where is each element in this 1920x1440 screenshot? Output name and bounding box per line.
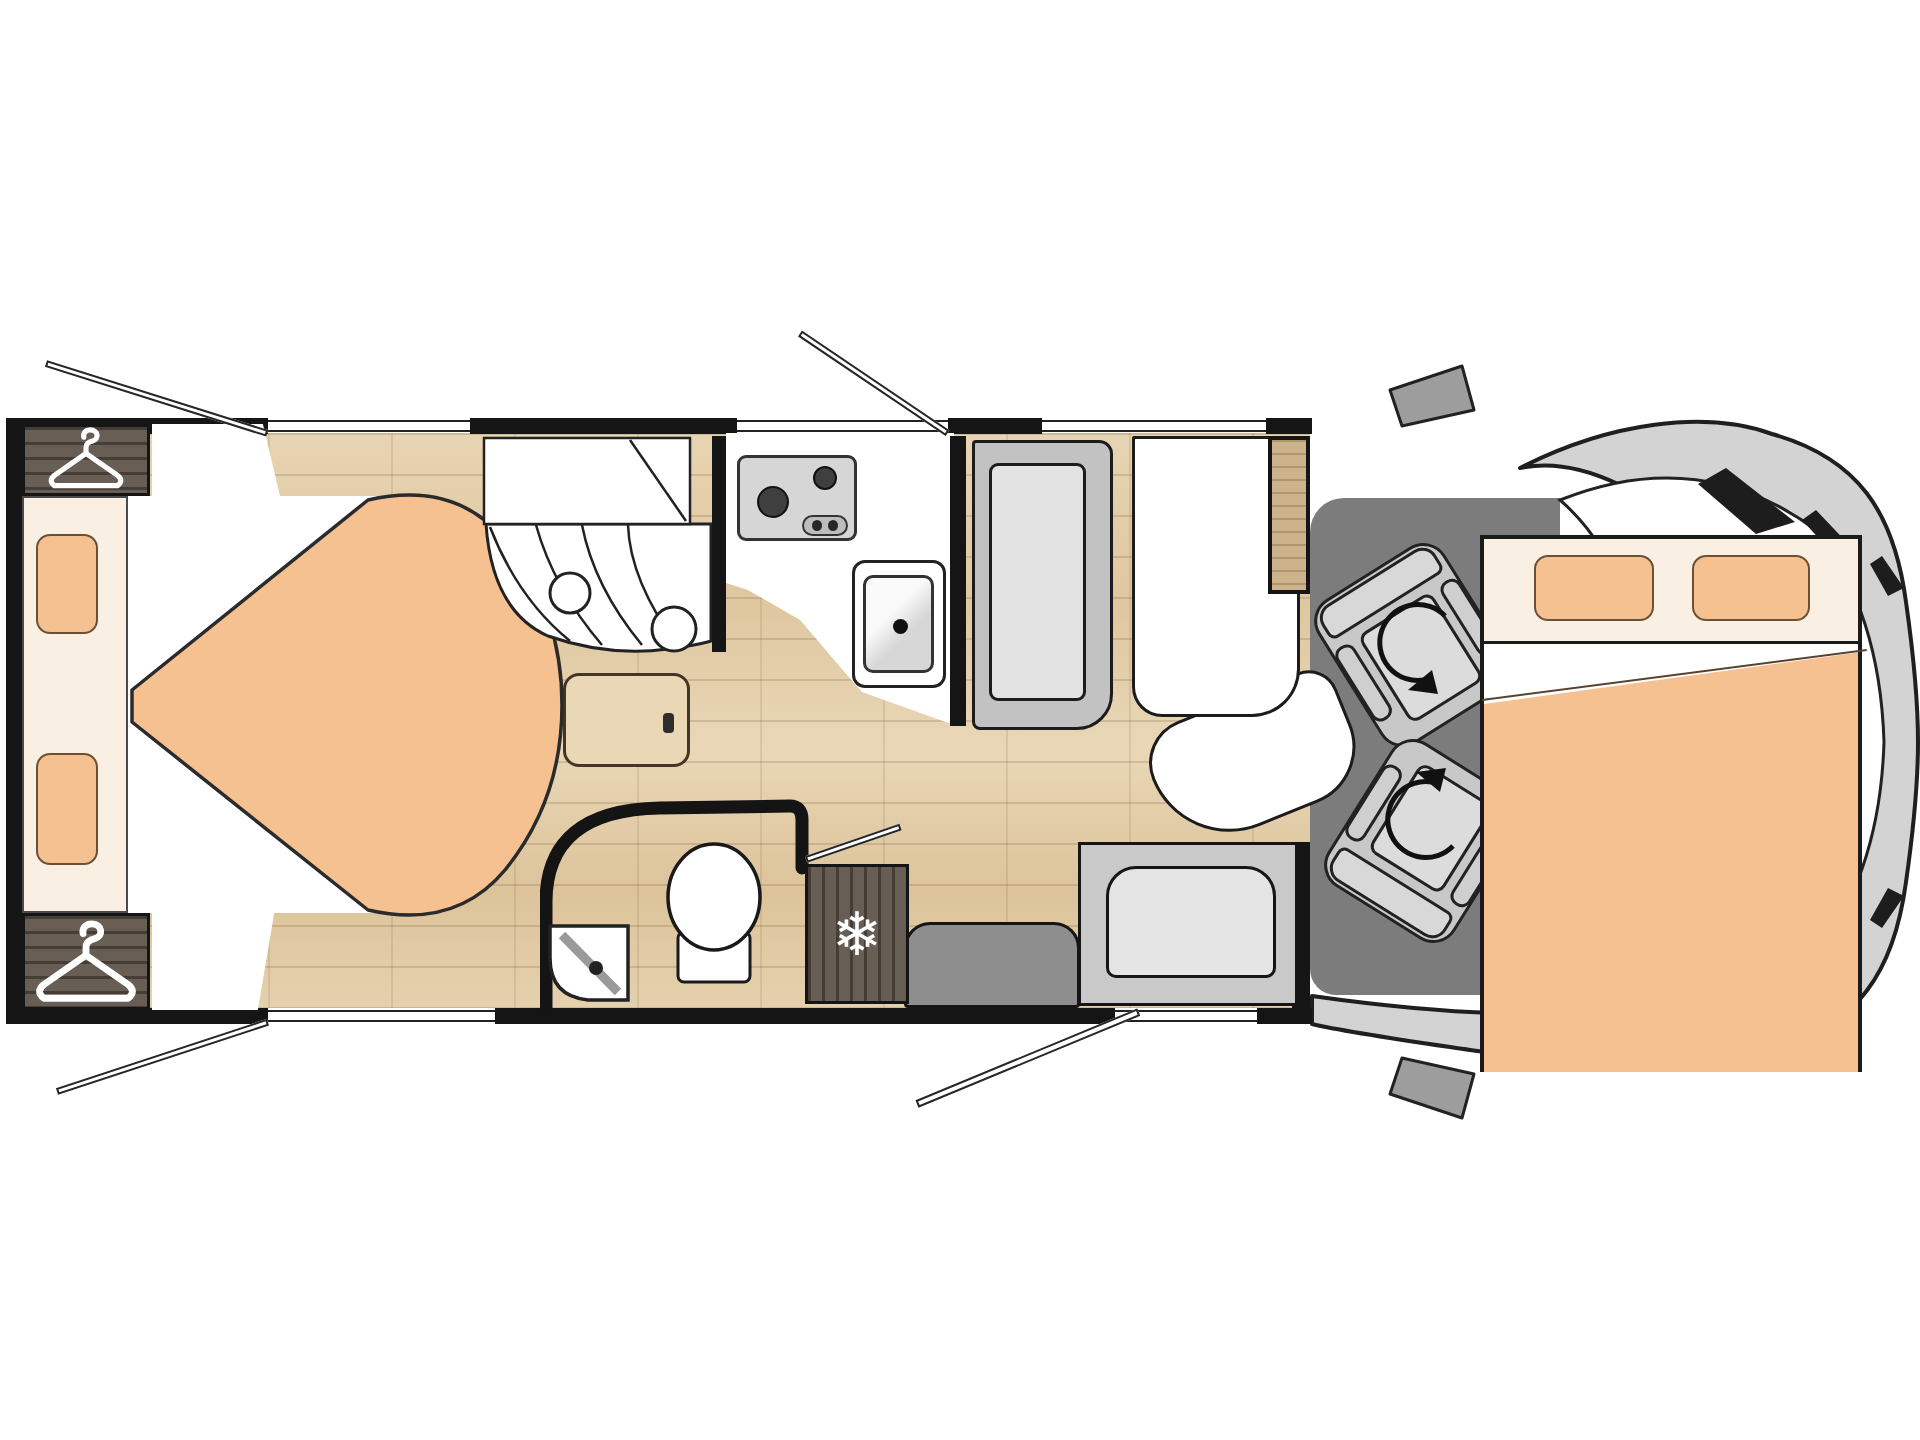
tall-cabinet bbox=[1268, 436, 1310, 594]
faucet-icon bbox=[893, 619, 908, 634]
pillow bbox=[36, 534, 98, 634]
pillow-band bbox=[1484, 539, 1858, 644]
kitchen-window bbox=[737, 420, 948, 432]
top-wall-segment bbox=[948, 418, 1042, 434]
floor-hatch bbox=[563, 673, 690, 767]
swivel-arrow-icon bbox=[1358, 586, 1468, 696]
entrance-step bbox=[1078, 842, 1298, 1006]
pillow bbox=[1534, 555, 1654, 621]
snowflake-icon: ❄ bbox=[832, 904, 882, 964]
bedroom-window bbox=[268, 420, 470, 432]
bathroom bbox=[540, 780, 840, 1020]
drop-down-bed bbox=[1480, 535, 1862, 1072]
hatch-handle bbox=[663, 713, 674, 733]
pillow bbox=[1692, 555, 1810, 621]
fridge-freezer: ❄ bbox=[805, 864, 909, 1004]
bedroom-window-2 bbox=[268, 1010, 495, 1022]
toilet bbox=[668, 844, 760, 950]
bench-cushion bbox=[989, 463, 1086, 701]
entrance-step-mat bbox=[1106, 866, 1276, 978]
burner-icon bbox=[813, 466, 837, 490]
open-window-pane bbox=[56, 1019, 269, 1095]
rear-wall bbox=[6, 418, 22, 1024]
shower-head bbox=[652, 607, 696, 651]
duvet bbox=[1484, 644, 1858, 1072]
dinette-window bbox=[1042, 420, 1268, 432]
hob-controls bbox=[802, 515, 848, 536]
entrance-seat bbox=[904, 922, 1080, 1008]
shower-kitchen-wall bbox=[712, 436, 726, 652]
dinette-bench bbox=[972, 440, 1113, 730]
kitchen-dinette-wall bbox=[950, 436, 966, 726]
shower-room bbox=[478, 431, 728, 663]
shower-head bbox=[550, 573, 590, 613]
basin-faucet-icon bbox=[589, 961, 603, 975]
floor-plan: ❄ bbox=[0, 0, 1920, 1440]
swivel-arrow-icon bbox=[1366, 766, 1476, 876]
top-wall-segment bbox=[1266, 418, 1312, 434]
hob bbox=[737, 455, 857, 541]
pillow bbox=[36, 753, 98, 865]
bottom-wall-segment bbox=[8, 1008, 268, 1024]
burner-icon bbox=[757, 486, 789, 518]
kitchen-sink bbox=[852, 560, 946, 688]
